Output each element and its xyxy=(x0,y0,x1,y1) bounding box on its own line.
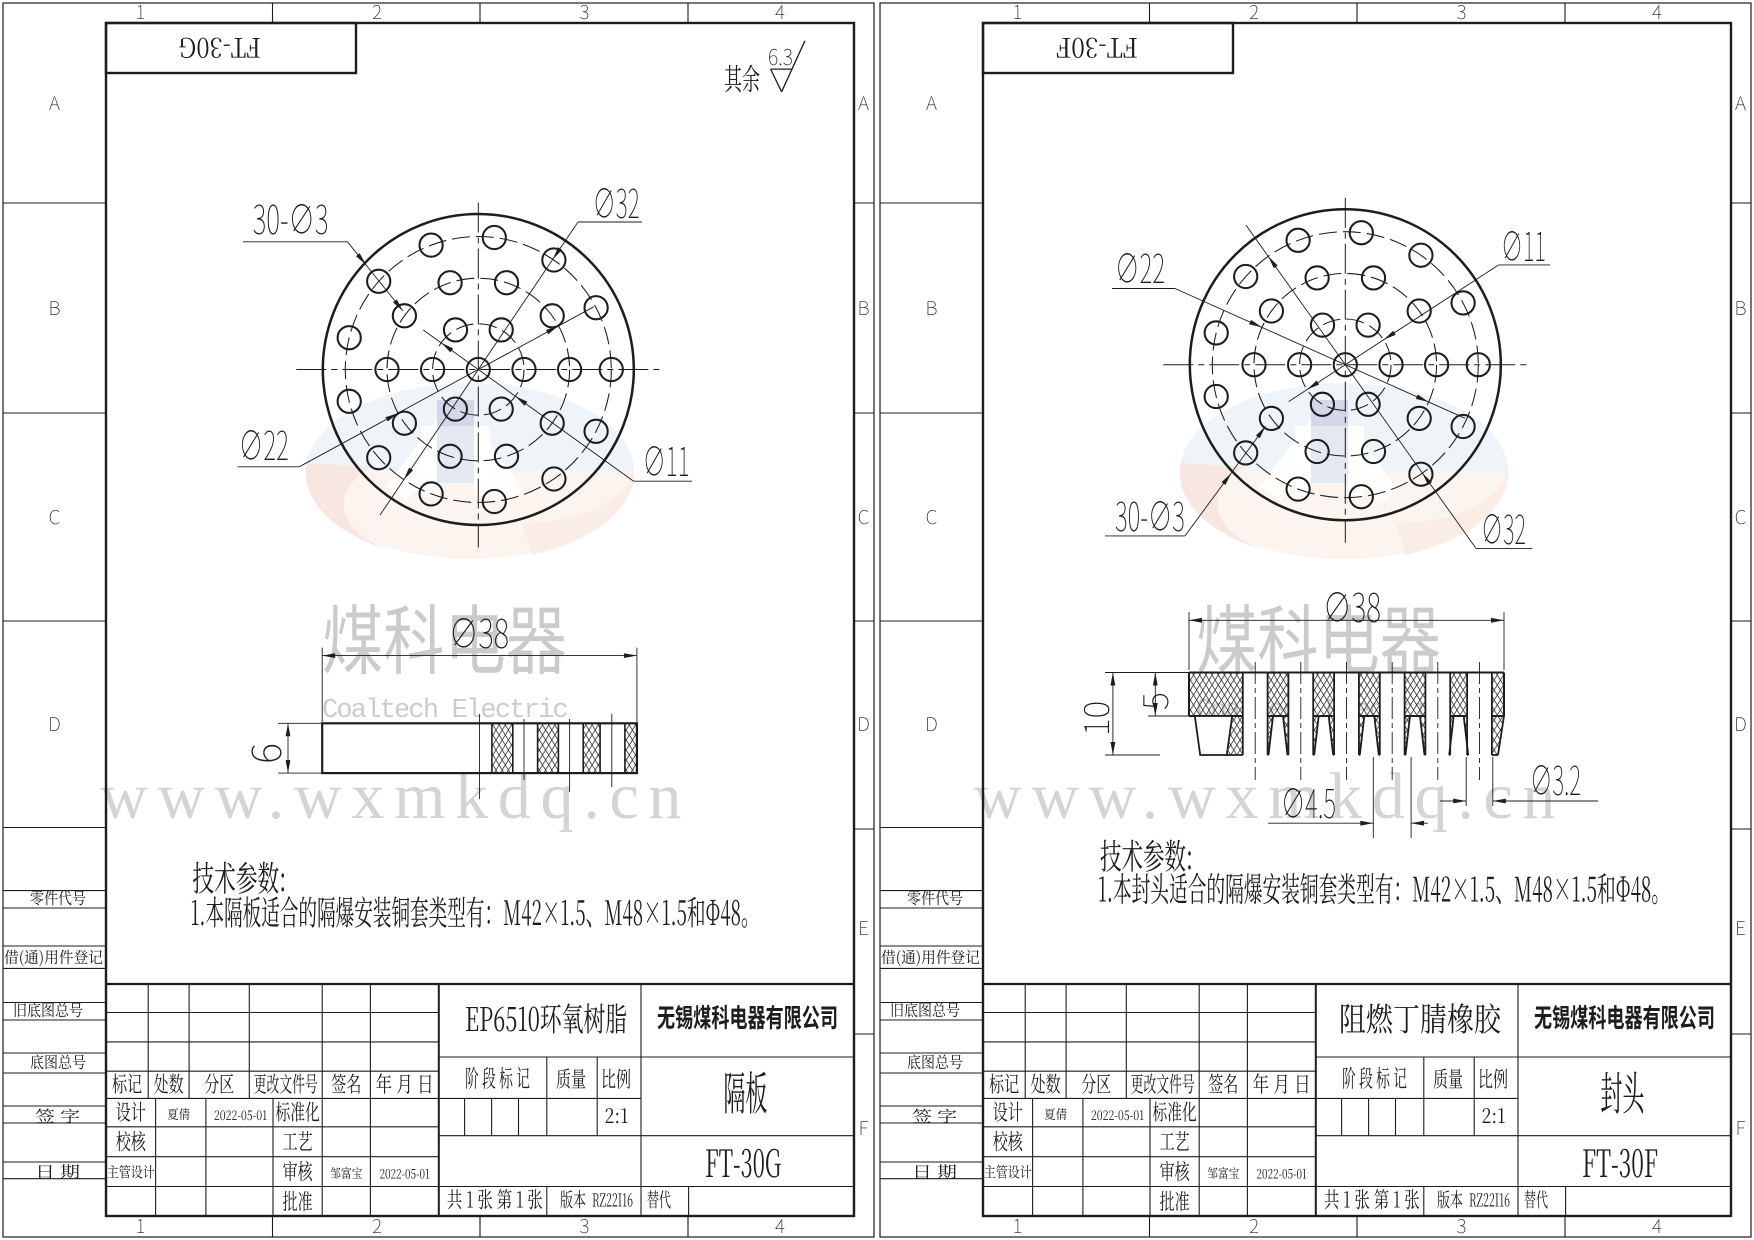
svg-text:www.wxmkdq.cn: www.wxmkdq.cn xyxy=(974,760,1565,833)
svg-text:Coaltech Electric: Coaltech Electric xyxy=(322,696,567,726)
svg-text:www.wxmkdq.cn: www.wxmkdq.cn xyxy=(100,760,691,833)
